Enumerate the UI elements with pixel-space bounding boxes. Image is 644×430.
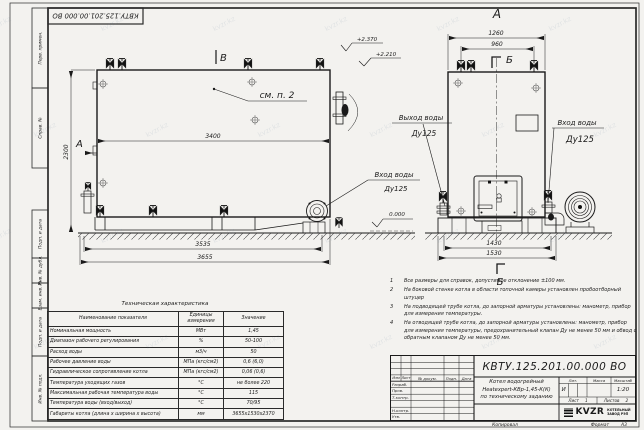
svg-text:+2.370: +2.370 — [357, 37, 378, 43]
spec-header-row: Наименование показателя Единицы измерени… — [48, 312, 284, 327]
sheet-cell: Лист1 — [559, 397, 597, 404]
drawing-sheet: Перв. примен. Справ. № Подп. и дата Инв.… — [0, 0, 644, 430]
list-item: 3На подводящей трубе котла, до запорной … — [390, 304, 638, 319]
mass-header: Масса — [587, 377, 611, 384]
spec-header-unit: Единицы измерения — [179, 312, 224, 327]
svg-text:А3: А3 — [620, 422, 627, 428]
svg-text:Ду125: Ду125 — [384, 185, 409, 193]
svg-text:+2.210: +2.210 — [376, 52, 397, 58]
view-a-title: А — [492, 7, 501, 21]
svg-text:0.000: 0.000 — [389, 212, 405, 218]
company-logo: KVZR КОТЕЛЬНЫЙ ЗАВОД РЭП — [559, 404, 635, 420]
lit-value: И — [559, 384, 568, 398]
svg-text:Выход воды: Выход воды — [399, 114, 444, 122]
level-ground: 0.000 — [370, 212, 413, 231]
kvzr-logo-text: KVZR — [576, 407, 605, 417]
table-row: Максимальная рабочая температура воды°С1… — [48, 388, 284, 398]
spec-header-value: Значение — [224, 312, 284, 327]
outlet-nozzle-side — [333, 92, 358, 131]
stamp-column-labels: Перв. примен. Справ. № Подп. и дата Инв.… — [38, 32, 44, 404]
side-view-dims: 3400 2300 3535 3655 В А см. п. 2 +2.370 … — [63, 37, 420, 265]
svg-text:1530: 1530 — [486, 250, 501, 257]
rev-col-podp: Подп. — [444, 375, 459, 381]
doc-number: КВТУ.125.201.00.000 ВО — [474, 356, 635, 377]
svg-text:Вход воды: Вход воды — [374, 171, 414, 179]
company-name: КОТЕЛЬНЫЙ ЗАВОД РЭП — [607, 408, 630, 417]
list-item: 2На боковой стенке котла в области топоч… — [390, 287, 638, 302]
role-utv: Утв. — [392, 414, 411, 420]
table-row: Расход водым3/ч50 — [48, 347, 284, 357]
table-row: Габариты котла (длина х ширина х высота)… — [48, 409, 284, 419]
svg-text:1260: 1260 — [488, 30, 503, 37]
section-b-label: В — [220, 53, 227, 64]
list-item: 1Все размеры для справок, допустимое отк… — [390, 278, 638, 286]
table-row: Диапазон рабочего регулирования%50-100 — [48, 337, 284, 347]
svg-text:Копировал: Копировал — [492, 422, 518, 428]
spec-table: Техническая характеристика Наименование … — [47, 297, 283, 420]
table-row: Номинальная мощностьМВт1,45 — [48, 327, 284, 337]
svg-text:1430: 1430 — [486, 240, 501, 247]
doc-number-rotated: КВТУ.125.201.00.000 ВО — [52, 12, 139, 20]
section-b-top-label: Б — [506, 55, 513, 66]
svg-text:Подп. и дата: Подп. и дата — [38, 317, 44, 347]
svg-text:Ду125: Ду125 — [565, 135, 594, 145]
notes-list: 1Все размеры для справок, допустимое отк… — [390, 278, 638, 344]
title-block: Изм Лист № докум. Подп. Дата Разраб. Про… — [390, 355, 636, 421]
table-row: Температура уходящих газов°Сне более 220 — [48, 378, 284, 388]
base-frame-side — [95, 217, 325, 233]
svg-text:Подп. и дата: Подп. и дата — [38, 219, 44, 249]
scale-value: 1:20 — [611, 384, 635, 398]
level-top: +2.370 — [341, 37, 383, 51]
level-nozzle: +2.210 — [359, 52, 401, 66]
svg-text:3535: 3535 — [195, 241, 210, 248]
table-row: Температура воды (вход/выход)°С70/95 — [48, 399, 284, 409]
boiler-body-side — [97, 70, 330, 217]
product-name: Котел водогрейный Heatexpert-КВр-1,45-К(… — [474, 377, 559, 404]
callout-see-p2: см. п. 2 — [260, 91, 295, 101]
rev-col-ndocum: № докум. — [411, 375, 444, 381]
inlet-pipe-front — [542, 191, 564, 225]
rev-col-data: Дата — [459, 375, 474, 381]
svg-text:Инв. № подл.: Инв. № подл. — [38, 373, 44, 403]
role-tkontr: Т.контр. — [392, 394, 411, 401]
sheets-cell: Листов2 — [597, 397, 635, 404]
furnace-door — [474, 176, 522, 233]
svg-text:Взам. инв. №: Взам. инв. № — [38, 280, 44, 310]
svg-text:Вход воды: Вход воды — [557, 119, 597, 127]
list-item: 4На отводящей трубе котла, до запорной а… — [390, 320, 638, 343]
inlet-label-front: Вход воды Ду125 — [548, 119, 604, 203]
table-row: Гидравлическое сопротивление котлаМПа (к… — [48, 368, 284, 378]
inlet-flange-side — [307, 201, 328, 222]
kvzr-logo-mark — [564, 408, 573, 417]
spec-header-name: Наименование показателя — [48, 312, 179, 327]
sight-glass — [516, 115, 538, 131]
burner-fan — [565, 192, 595, 233]
svg-text:Ду125: Ду125 — [411, 129, 437, 138]
svg-text:2300: 2300 — [63, 144, 70, 159]
svg-text:3400: 3400 — [205, 133, 220, 140]
table-row: Рабочее давление водыМПа (кгс/см2)0,6 (6… — [48, 357, 284, 367]
side-view — [78, 59, 415, 240]
section-a-label: А — [75, 139, 83, 150]
front-view-dims: 1260 960 Б 1430 1530 Б Выход воды Ду125 … — [392, 30, 604, 288]
svg-text:Перв. примен.: Перв. примен. — [38, 32, 44, 65]
inlet-label-side: Вход воды Ду125 — [326, 171, 420, 206]
svg-text:Формат: Формат — [591, 422, 610, 428]
svg-text:Справ. №: Справ. № — [38, 117, 44, 139]
svg-text:960: 960 — [491, 41, 503, 48]
svg-text:3655: 3655 — [197, 254, 212, 261]
spec-table-title: Техническая характеристика — [47, 297, 283, 311]
